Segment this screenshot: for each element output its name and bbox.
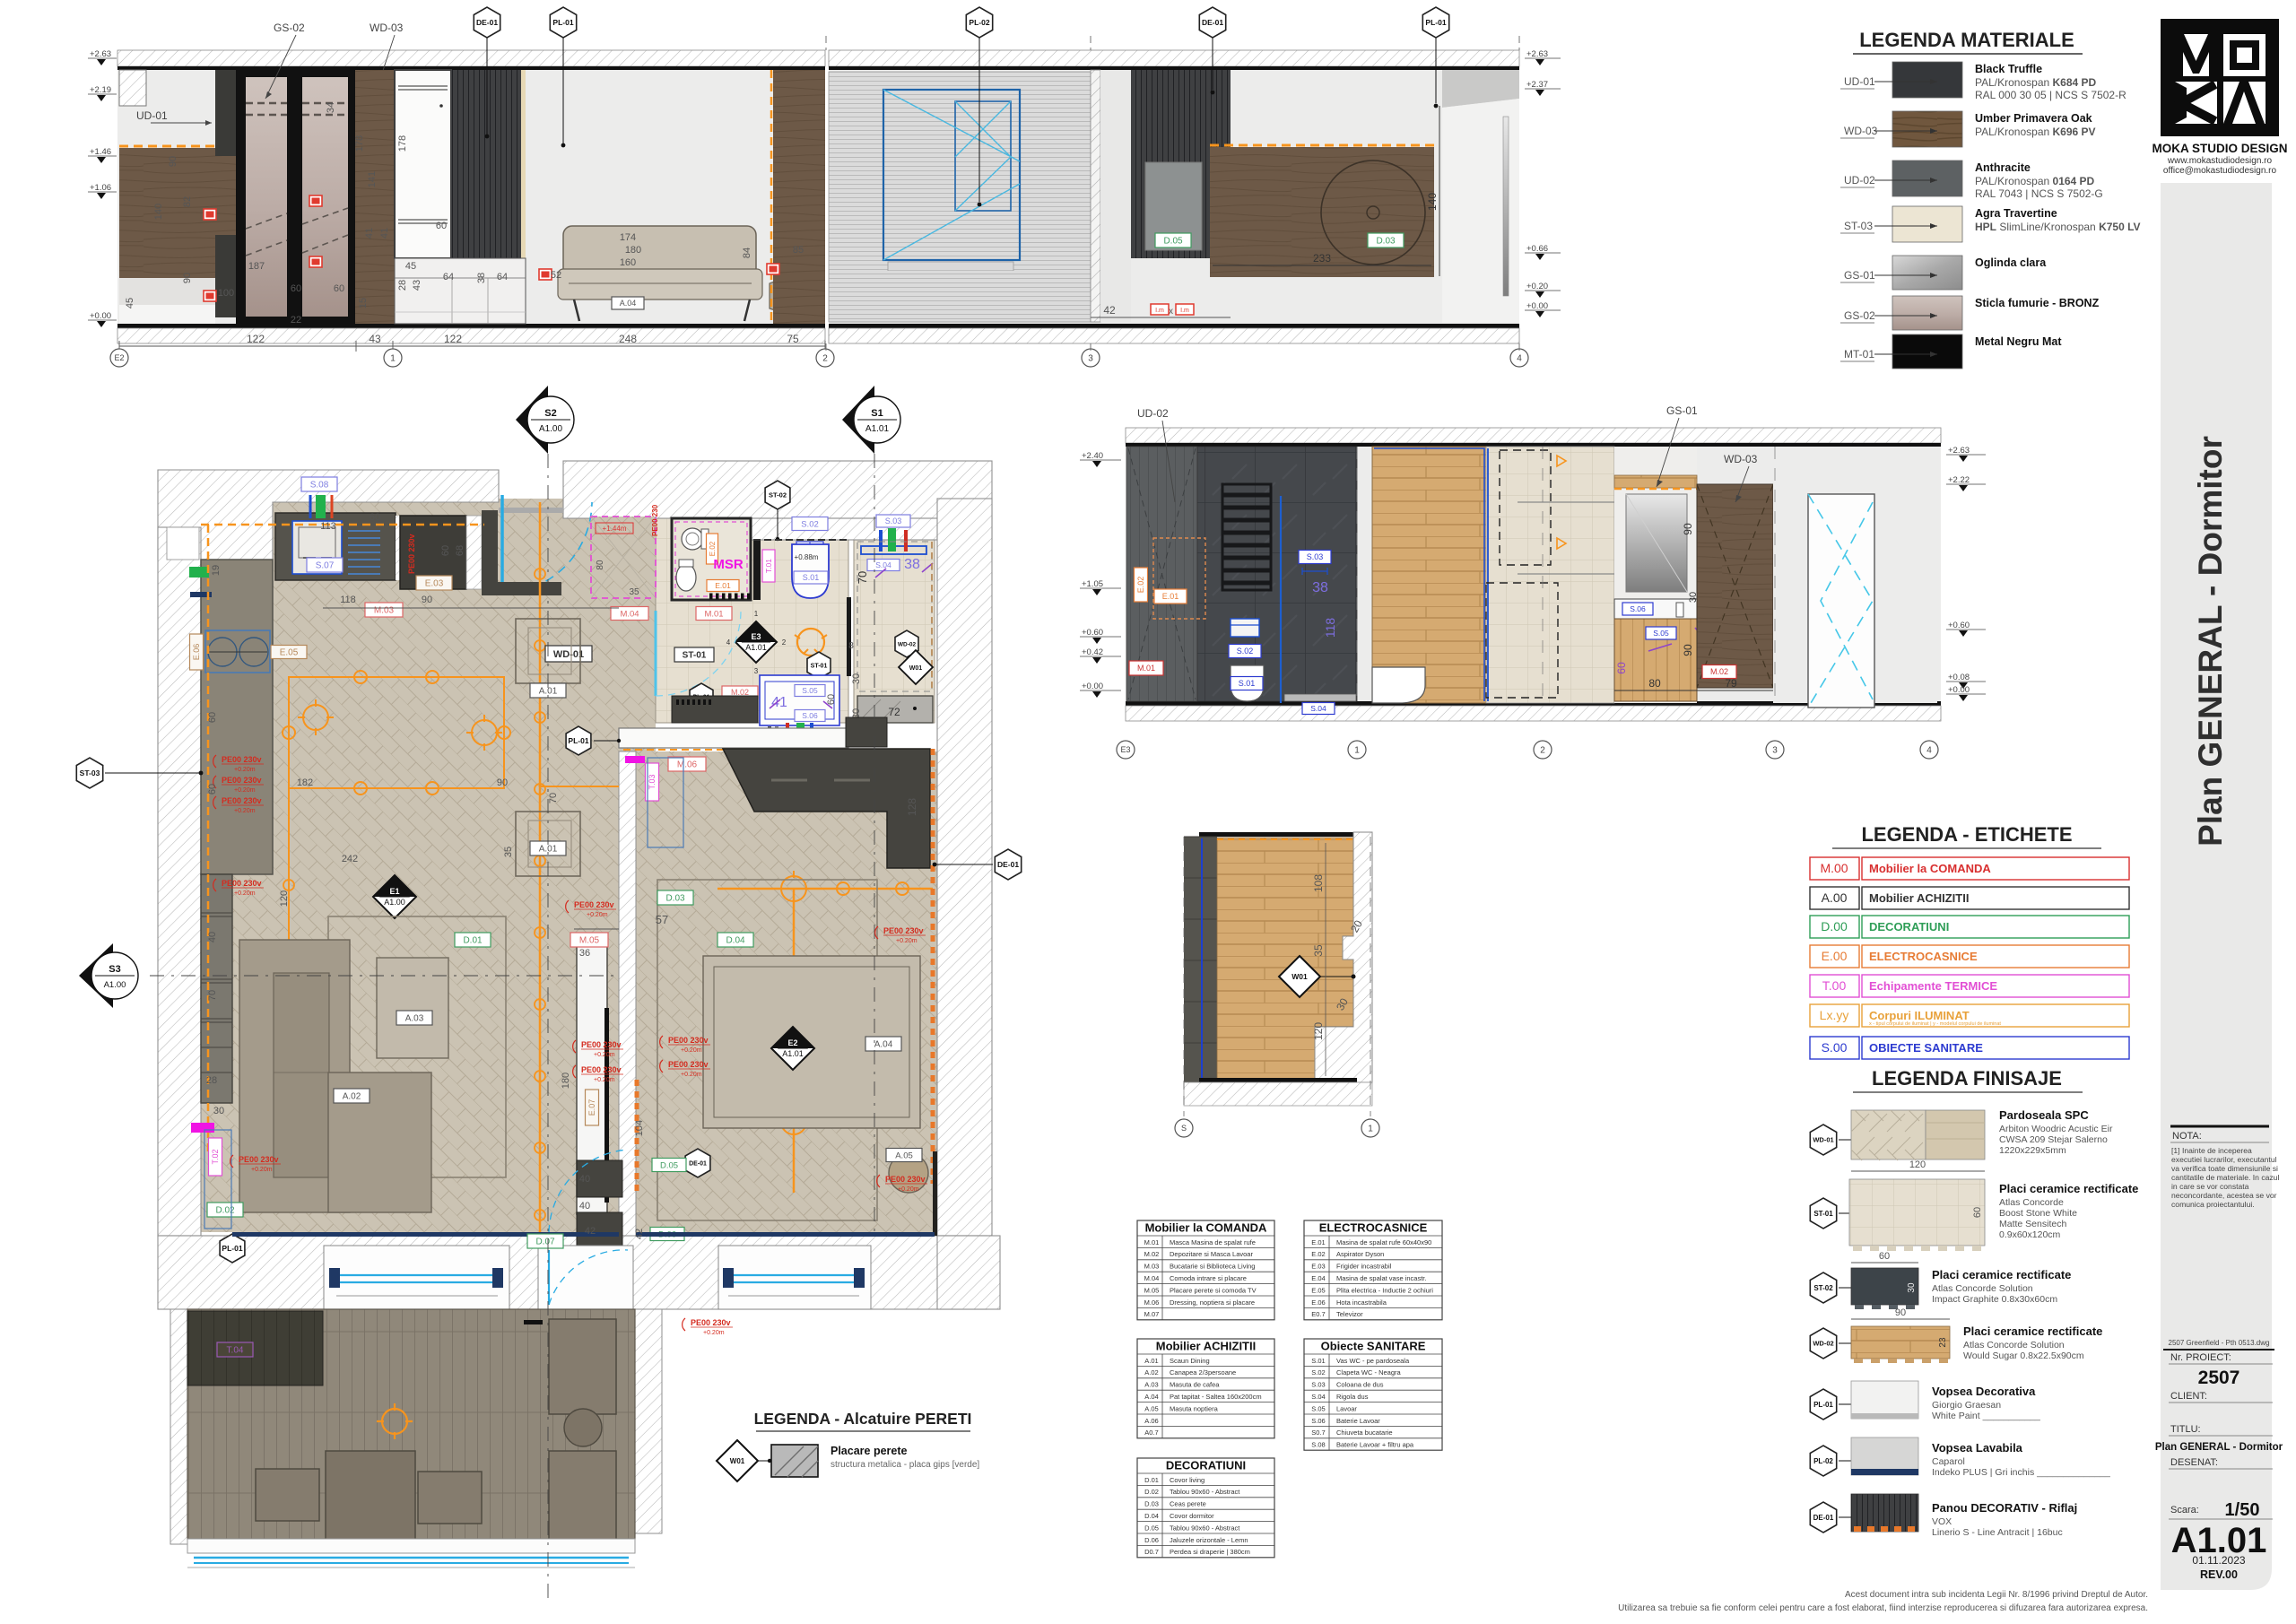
svg-text:E.02: E.02 xyxy=(1311,1250,1325,1258)
svg-text:ST-03: ST-03 xyxy=(1844,220,1873,232)
svg-text:ST-01: ST-01 xyxy=(683,651,707,661)
svg-text:ST-02: ST-02 xyxy=(1813,1284,1833,1292)
svg-text:Matte Sensitech: Matte Sensitech xyxy=(1999,1219,2066,1229)
svg-text:A.04: A.04 xyxy=(874,1040,893,1050)
svg-text:80: 80 xyxy=(596,560,605,570)
svg-text:+0.60: +0.60 xyxy=(1082,628,1103,638)
svg-text:64: 64 xyxy=(443,272,454,282)
svg-text:ST-02: ST-02 xyxy=(769,491,787,499)
svg-text:S.03: S.03 xyxy=(1307,552,1324,561)
svg-text:Vas WC - pe pardoseala: Vas WC - pe pardoseala xyxy=(1336,1357,1410,1365)
svg-text:M.01: M.01 xyxy=(1144,1238,1160,1246)
svg-text:M.05: M.05 xyxy=(1144,1286,1160,1294)
svg-text:GS-01: GS-01 xyxy=(1844,269,1875,282)
svg-text:+0.20m: +0.20m xyxy=(681,1072,702,1078)
svg-text:E.05: E.05 xyxy=(1311,1286,1325,1294)
svg-text:Utilizarea sa trebuie sa fie c: Utilizarea sa trebuie sa fie conform cel… xyxy=(1618,1603,2148,1613)
svg-text:180: 180 xyxy=(561,1073,571,1089)
svg-text:PE00 230v: PE00 230v xyxy=(222,796,262,805)
svg-text:35: 35 xyxy=(1312,944,1325,957)
svg-text:PL-01: PL-01 xyxy=(568,736,588,745)
svg-text:Mobilier la COMANDA: Mobilier la COMANDA xyxy=(1145,1221,1267,1235)
svg-text:Obiecte SANITARE: Obiecte SANITARE xyxy=(1321,1340,1426,1353)
svg-text:248: 248 xyxy=(619,333,637,345)
svg-text:LEGENDA - Alcatuire PERETI: LEGENDA - Alcatuire PERETI xyxy=(754,1410,972,1428)
svg-text:Boost Stone White: Boost Stone White xyxy=(1999,1208,2077,1219)
svg-text:M.03: M.03 xyxy=(1144,1263,1160,1271)
svg-text:+0.60: +0.60 xyxy=(1948,621,1970,630)
svg-text:S.06: S.06 xyxy=(1630,604,1646,613)
svg-text:1: 1 xyxy=(390,354,396,364)
svg-text:S.01: S.01 xyxy=(803,573,820,582)
svg-text:S.01: S.01 xyxy=(1239,679,1256,688)
svg-text:PL-01: PL-01 xyxy=(552,18,573,27)
svg-text:38: 38 xyxy=(904,557,920,572)
svg-text:OBIECTE SANITARE: OBIECTE SANITARE xyxy=(1869,1041,1983,1055)
svg-text:S.03: S.03 xyxy=(885,517,902,525)
svg-text:Canapea 2/3persoane: Canapea 2/3persoane xyxy=(1170,1368,1236,1376)
svg-text:Chiuveta bucatarie: Chiuveta bucatarie xyxy=(1336,1429,1393,1437)
svg-text:Giorgio Graesan: Giorgio Graesan xyxy=(1932,1400,2001,1411)
svg-text:80: 80 xyxy=(1648,677,1661,690)
svg-text:UD-02: UD-02 xyxy=(1137,407,1169,420)
svg-text:Masuta de cafea: Masuta de cafea xyxy=(1170,1381,1220,1389)
svg-text:PL-02: PL-02 xyxy=(1813,1457,1833,1465)
svg-text:S3: S3 xyxy=(109,964,120,975)
svg-text:28: 28 xyxy=(206,1075,217,1086)
svg-text:187: 187 xyxy=(248,261,265,272)
svg-text:90: 90 xyxy=(422,595,432,605)
svg-text:E0.7: E0.7 xyxy=(1311,1310,1325,1318)
svg-text:Plan GENERAL - Dormitor: Plan GENERAL - Dormitor xyxy=(2192,436,2229,847)
svg-text:WD-03: WD-03 xyxy=(370,22,404,34)
svg-text:D.03: D.03 xyxy=(1144,1500,1159,1508)
svg-text:W01: W01 xyxy=(909,665,923,672)
svg-text:35: 35 xyxy=(503,847,514,857)
svg-text:52: 52 xyxy=(551,270,561,281)
svg-text:60: 60 xyxy=(440,545,451,556)
svg-text:E.03: E.03 xyxy=(425,579,444,589)
svg-text:120: 120 xyxy=(1909,1159,1926,1170)
svg-text:White Paint ___________: White Paint ___________ xyxy=(1932,1411,2040,1421)
svg-text:+1.44m: +1.44m xyxy=(603,525,627,533)
svg-text:3: 3 xyxy=(1772,746,1778,756)
svg-text:T.02: T.02 xyxy=(211,1149,220,1164)
svg-text:D.05: D.05 xyxy=(1163,237,1183,247)
svg-text:64: 64 xyxy=(497,272,508,282)
svg-text:4: 4 xyxy=(726,638,731,647)
svg-text:45: 45 xyxy=(405,261,416,272)
svg-text:43: 43 xyxy=(412,280,422,291)
svg-text:W01: W01 xyxy=(1291,972,1308,981)
svg-text:WD-03: WD-03 xyxy=(1844,125,1878,137)
svg-text:79: 79 xyxy=(1725,677,1737,690)
svg-text:DECORATIUNI: DECORATIUNI xyxy=(1869,920,1949,934)
svg-text:43: 43 xyxy=(369,333,381,345)
svg-text:PL-01: PL-01 xyxy=(222,1244,242,1253)
svg-text:60: 60 xyxy=(207,712,218,723)
svg-text:4: 4 xyxy=(1926,746,1932,756)
svg-text:A0.7: A0.7 xyxy=(1144,1429,1158,1437)
svg-text:D.02: D.02 xyxy=(1144,1488,1159,1496)
svg-text:Umber Primavera Oak: Umber Primavera Oak xyxy=(1975,112,2092,125)
svg-text:RAL 000 30 05 | NCS S 7502-R: RAL 000 30 05 | NCS S 7502-R xyxy=(1975,89,2126,101)
svg-text:S.08: S.08 xyxy=(1311,1441,1325,1449)
svg-text:PE00 230: PE00 230 xyxy=(651,504,659,536)
svg-text:3: 3 xyxy=(1088,354,1093,364)
svg-text:A.05: A.05 xyxy=(1144,1404,1158,1412)
svg-text:Plan GENERAL - Dormitor: Plan GENERAL - Dormitor xyxy=(2155,1442,2283,1453)
svg-text:A.03: A.03 xyxy=(1144,1381,1158,1389)
svg-text:M.02: M.02 xyxy=(1144,1250,1160,1258)
svg-text:M.01: M.01 xyxy=(704,609,723,619)
svg-text:M.03: M.03 xyxy=(374,606,395,616)
svg-text:+0.88m: +0.88m xyxy=(795,553,819,561)
svg-text:Placi ceramice rectificate: Placi ceramice rectificate xyxy=(1999,1182,2138,1195)
svg-text:S2: S2 xyxy=(544,408,556,419)
svg-text:+2.63: +2.63 xyxy=(1948,446,1970,456)
svg-text:41: 41 xyxy=(364,228,375,239)
svg-text:Arbiton Woodric Acustic Eir: Arbiton Woodric Acustic Eir xyxy=(1999,1124,2113,1134)
svg-text:108: 108 xyxy=(1312,874,1325,892)
svg-text:D.00: D.00 xyxy=(1821,919,1848,934)
svg-text:M.06: M.06 xyxy=(1144,1298,1160,1307)
svg-text:Impact Graphite 0.8x30x60cm: Impact Graphite 0.8x30x60cm xyxy=(1932,1294,2057,1305)
svg-text:E.06: E.06 xyxy=(1311,1298,1325,1307)
svg-text:Agra Travertine: Agra Travertine xyxy=(1975,207,2057,220)
svg-text:S.07: S.07 xyxy=(316,561,335,571)
svg-text:Dressing, noptiera si placare: Dressing, noptiera si placare xyxy=(1170,1298,1255,1307)
svg-text:+0.20m: +0.20m xyxy=(594,1052,615,1058)
svg-text:Sticla fumurie - BRONZ: Sticla fumurie - BRONZ xyxy=(1975,297,2100,309)
svg-text:85: 85 xyxy=(793,245,804,256)
svg-text:120: 120 xyxy=(1312,1022,1325,1040)
svg-text:90: 90 xyxy=(497,777,508,788)
svg-text:128: 128 xyxy=(906,798,918,816)
svg-text:Perdea si draperie | 380cm: Perdea si draperie | 380cm xyxy=(1170,1548,1250,1556)
svg-text:160: 160 xyxy=(620,257,636,268)
svg-text:28: 28 xyxy=(397,280,408,291)
svg-text:30: 30 xyxy=(213,1106,224,1116)
svg-text:1220x229x5mm: 1220x229x5mm xyxy=(1999,1145,2066,1156)
svg-text:DECORATIUNI: DECORATIUNI xyxy=(1166,1459,1246,1472)
svg-text:+0.20m: +0.20m xyxy=(681,1047,702,1054)
svg-text:60: 60 xyxy=(1972,1207,1983,1218)
svg-text:120: 120 xyxy=(279,890,290,907)
svg-text:MT-01: MT-01 xyxy=(1844,348,1874,360)
svg-text:36: 36 xyxy=(579,948,590,959)
svg-text:D.05: D.05 xyxy=(1144,1524,1159,1532)
svg-text:T.04: T.04 xyxy=(227,1346,244,1356)
svg-text:I.m: I.m xyxy=(1180,308,1189,314)
svg-text:60: 60 xyxy=(207,784,218,795)
svg-text:1: 1 xyxy=(754,610,759,618)
svg-text:34: 34 xyxy=(326,102,336,113)
svg-text:+0.00: +0.00 xyxy=(90,311,111,321)
svg-text:PE00 230v: PE00 230v xyxy=(668,1060,709,1069)
svg-text:Masina de spalat vase incastr.: Masina de spalat vase incastr. xyxy=(1336,1274,1426,1282)
svg-text:8: 8 xyxy=(848,641,854,651)
svg-text:15: 15 xyxy=(358,298,369,308)
svg-text:Masca Masina de spalat rufe: Masca Masina de spalat rufe xyxy=(1170,1238,1256,1246)
svg-text:Nr. PROIECT:: Nr. PROIECT: xyxy=(2170,1352,2231,1363)
svg-text:1: 1 xyxy=(1354,746,1360,756)
svg-text:90: 90 xyxy=(168,156,178,167)
svg-text:M.04: M.04 xyxy=(620,609,639,619)
svg-text:A.01: A.01 xyxy=(1144,1357,1158,1365)
svg-text:T.00: T.00 xyxy=(1822,978,1847,993)
svg-text:A.02: A.02 xyxy=(1144,1368,1158,1376)
svg-text:A.01: A.01 xyxy=(539,687,558,697)
svg-text:E2: E2 xyxy=(787,1038,797,1047)
svg-text:Televizor: Televizor xyxy=(1336,1310,1363,1318)
svg-text:office@mokastudiodesign.ro: office@mokastudiodesign.ro xyxy=(2163,166,2277,176)
svg-text:T.03: T.03 xyxy=(648,774,657,789)
svg-text:A.03: A.03 xyxy=(405,1014,424,1024)
svg-text:+0.20m: +0.20m xyxy=(234,808,256,814)
svg-text:Coloana de dus: Coloana de dus xyxy=(1336,1381,1384,1389)
svg-text:Caparol: Caparol xyxy=(1932,1456,1965,1467)
svg-text:60: 60 xyxy=(826,694,837,705)
svg-text:PE00 230v: PE00 230v xyxy=(885,1175,926,1184)
svg-text:+0.20m: +0.20m xyxy=(251,1167,273,1173)
svg-text:ELECTROCASNICE: ELECTROCASNICE xyxy=(1869,950,1978,963)
svg-text:E.01: E.01 xyxy=(715,581,731,590)
svg-text:84: 84 xyxy=(742,248,752,258)
svg-text:Depozitare si Masca Lavoar: Depozitare si Masca Lavoar xyxy=(1170,1250,1253,1258)
svg-text:Vopsea Decorativa: Vopsea Decorativa xyxy=(1932,1385,2036,1398)
svg-text:Baterie Lavoar + filtru apa: Baterie Lavoar + filtru apa xyxy=(1336,1441,1414,1449)
svg-text:A1.00: A1.00 xyxy=(104,980,126,990)
svg-text:PE00 230v: PE00 230v xyxy=(581,1040,622,1049)
svg-text:+0.42: +0.42 xyxy=(1082,647,1103,657)
svg-text:42: 42 xyxy=(1103,304,1116,317)
svg-text:140: 140 xyxy=(153,204,164,220)
svg-text:A.06: A.06 xyxy=(1144,1417,1158,1425)
svg-text:180: 180 xyxy=(625,245,641,256)
svg-text:GS-02: GS-02 xyxy=(1844,309,1875,322)
svg-text:S.02: S.02 xyxy=(1311,1368,1325,1376)
svg-text:ELECTROCASNICE: ELECTROCASNICE xyxy=(1319,1221,1428,1235)
svg-text:PE00 230v: PE00 230v xyxy=(222,776,262,785)
svg-text:233: 233 xyxy=(1313,252,1331,265)
svg-text:in care se vor constata: in care se vor constata xyxy=(2171,1182,2249,1191)
svg-text:x - tipul corpului de iluminat: x - tipul corpului de iluminat | y - mod… xyxy=(1869,1021,2001,1027)
svg-text:E3: E3 xyxy=(1120,745,1130,754)
svg-text:Masina de spalat rufe 60x40x90: Masina de spalat rufe 60x40x90 xyxy=(1336,1238,1431,1246)
svg-text:Would Sugar 0.8x22.5x90cm: Would Sugar 0.8x22.5x90cm xyxy=(1963,1350,2084,1361)
svg-text:60: 60 xyxy=(1615,662,1628,674)
svg-text:LEGENDA - ETICHETE: LEGENDA - ETICHETE xyxy=(1861,823,2072,846)
svg-text:Clapeta WC - Neagra: Clapeta WC - Neagra xyxy=(1336,1368,1402,1376)
svg-text:E.04: E.04 xyxy=(1311,1274,1325,1282)
svg-text:DE-01: DE-01 xyxy=(476,18,498,27)
svg-text:40: 40 xyxy=(207,932,218,942)
svg-text:M.02: M.02 xyxy=(1710,667,1728,676)
svg-text:118: 118 xyxy=(340,595,356,605)
svg-text:+0.00: +0.00 xyxy=(1948,685,1970,695)
svg-text:242: 242 xyxy=(342,854,358,864)
svg-text:+0.20m: +0.20m xyxy=(234,787,256,794)
svg-text:I.m: I.m xyxy=(1155,308,1164,314)
svg-text:HPL SlimLine/Kronospan K750 LV: HPL SlimLine/Kronospan K750 LV xyxy=(1975,221,2141,233)
svg-text:DE-01: DE-01 xyxy=(1813,1514,1834,1522)
svg-text:comunica proiectantului.: comunica proiectantului. xyxy=(2171,1200,2255,1209)
svg-text:+2.19: +2.19 xyxy=(90,85,111,95)
svg-text:+2.40: +2.40 xyxy=(1082,451,1103,461)
svg-text:4: 4 xyxy=(1517,354,1522,364)
svg-text:Metal Negru Mat: Metal Negru Mat xyxy=(1975,335,2062,348)
svg-text:WD-02: WD-02 xyxy=(898,641,917,647)
svg-text:VOX: VOX xyxy=(1932,1516,1952,1527)
svg-text:E2: E2 xyxy=(114,353,124,362)
svg-text:M.00: M.00 xyxy=(1820,861,1848,875)
svg-text:41: 41 xyxy=(771,695,787,710)
svg-text:1/50: 1/50 xyxy=(2225,1500,2260,1520)
svg-text:E.00: E.00 xyxy=(1822,949,1848,963)
svg-text:[1] Inainte de inceperea: [1] Inainte de inceperea xyxy=(2171,1146,2252,1155)
svg-text:LEGENDA FINISAJE: LEGENDA FINISAJE xyxy=(1872,1067,2062,1090)
svg-text:E1: E1 xyxy=(389,887,399,896)
svg-text:178: 178 xyxy=(354,135,365,152)
svg-text:D.01: D.01 xyxy=(1144,1476,1159,1484)
svg-text:Jaluzele orizontale - Lemn: Jaluzele orizontale - Lemn xyxy=(1170,1536,1248,1544)
svg-text:Comoda intrare si placare: Comoda intrare si placare xyxy=(1170,1274,1247,1282)
svg-text:Mobilier ACHIZITII: Mobilier ACHIZITII xyxy=(1869,891,1969,905)
svg-text:30: 30 xyxy=(851,673,862,684)
svg-text:A1.01: A1.01 xyxy=(782,1049,804,1058)
svg-text:M.06: M.06 xyxy=(677,760,698,770)
svg-text:A.04: A.04 xyxy=(620,299,637,308)
svg-text:60: 60 xyxy=(1879,1251,1890,1262)
svg-text:UD-01: UD-01 xyxy=(136,109,168,122)
svg-text:2507 Greenfield - Pth 0513.dwg: 2507 Greenfield - Pth 0513.dwg xyxy=(2169,1339,2270,1347)
svg-text:+2.63: +2.63 xyxy=(1526,49,1548,59)
svg-text:+0.00: +0.00 xyxy=(1526,301,1548,311)
svg-text:122: 122 xyxy=(444,333,462,345)
svg-text:RAL 7043 | NCS S 7502-G: RAL 7043 | NCS S 7502-G xyxy=(1975,187,2103,200)
svg-text:Plita electrica - Inductie 2 o: Plita electrica - Inductie 2 ochiuri xyxy=(1336,1286,1433,1294)
svg-text:Covor dormitor: Covor dormitor xyxy=(1170,1512,1214,1520)
svg-text:2: 2 xyxy=(822,354,828,364)
svg-text:Lx.yy: Lx.yy xyxy=(1820,1008,1849,1022)
svg-text:MSR: MSR xyxy=(713,557,744,572)
svg-text:PE00 230v: PE00 230v xyxy=(574,900,614,909)
svg-text:E.05: E.05 xyxy=(280,648,299,658)
svg-text:NOTA:: NOTA: xyxy=(2172,1131,2202,1142)
svg-text:DE-01: DE-01 xyxy=(689,1160,707,1167)
svg-text:A.02: A.02 xyxy=(343,1092,361,1102)
svg-text:Panou DECORATIV - Riflaj: Panou DECORATIV - Riflaj xyxy=(1932,1501,2077,1515)
svg-text:60: 60 xyxy=(291,283,301,294)
svg-text:Placi ceramice rectificate: Placi ceramice rectificate xyxy=(1932,1268,2071,1281)
svg-text:D.04: D.04 xyxy=(1144,1512,1159,1520)
svg-text:UD-01: UD-01 xyxy=(1844,75,1875,88)
svg-text:GS-01: GS-01 xyxy=(1666,404,1698,417)
svg-text:A.04: A.04 xyxy=(1144,1393,1158,1401)
svg-text:3: 3 xyxy=(754,667,759,675)
svg-text:S.03: S.03 xyxy=(1311,1381,1325,1389)
svg-text:178: 178 xyxy=(397,135,408,152)
svg-text:+0.08: +0.08 xyxy=(1948,673,1970,682)
svg-text:S.05: S.05 xyxy=(802,686,818,695)
svg-text:E.03: E.03 xyxy=(1311,1263,1325,1271)
svg-text:S.00: S.00 xyxy=(1822,1040,1848,1055)
svg-text:GS-02: GS-02 xyxy=(274,22,305,34)
svg-text:Placare perete si comoda TV: Placare perete si comoda TV xyxy=(1170,1286,1257,1294)
svg-text:141: 141 xyxy=(367,171,378,187)
svg-text:CWSA 209 Stejar Salerno: CWSA 209 Stejar Salerno xyxy=(1999,1134,2108,1145)
svg-text:D.02: D.02 xyxy=(215,1206,235,1216)
svg-text:19: 19 xyxy=(211,565,222,576)
svg-text:E.01: E.01 xyxy=(1311,1238,1325,1246)
svg-text:23: 23 xyxy=(1938,1337,1948,1348)
svg-text:30: 30 xyxy=(1688,592,1699,603)
svg-text:57: 57 xyxy=(656,913,668,926)
svg-text:Mobilier ACHIZITII: Mobilier ACHIZITII xyxy=(1156,1340,1256,1353)
svg-text:+0.20m: +0.20m xyxy=(234,890,256,897)
svg-text:42: 42 xyxy=(585,1226,596,1237)
svg-text:PE00 230v: PE00 230v xyxy=(581,1065,622,1074)
svg-text:90: 90 xyxy=(182,273,193,283)
svg-text:90: 90 xyxy=(1895,1307,1906,1318)
svg-text:72: 72 xyxy=(888,706,900,718)
svg-text:Masuta noptiera: Masuta noptiera xyxy=(1170,1404,1219,1412)
svg-text:E3: E3 xyxy=(751,632,761,641)
svg-text:+0.20m: +0.20m xyxy=(587,912,608,918)
svg-text:Frigider incastrabil: Frigider incastrabil xyxy=(1336,1263,1392,1271)
svg-text:DE-01: DE-01 xyxy=(1202,18,1223,27)
svg-text:+0.66: +0.66 xyxy=(1526,244,1548,254)
svg-text:90: 90 xyxy=(1682,644,1694,656)
svg-text:S1: S1 xyxy=(871,408,883,419)
svg-text:T.01: T.01 xyxy=(764,559,773,573)
svg-text:neconcordante, acestea se vor: neconcordante, acestea se vor xyxy=(2171,1191,2277,1200)
svg-text:S.06: S.06 xyxy=(802,711,818,720)
svg-text:W01: W01 xyxy=(730,1457,745,1465)
svg-text:Baterie Lavoar: Baterie Lavoar xyxy=(1336,1417,1380,1425)
svg-text:60: 60 xyxy=(436,221,447,231)
svg-text:CLIENT:: CLIENT: xyxy=(2170,1391,2207,1402)
svg-text:30: 30 xyxy=(1907,1282,1917,1293)
svg-text:60: 60 xyxy=(334,283,344,294)
svg-text:S: S xyxy=(1181,1124,1187,1133)
svg-text:S.06: S.06 xyxy=(1311,1417,1325,1425)
svg-text:MOKA STUDIO DESIGN: MOKA STUDIO DESIGN xyxy=(2152,142,2287,155)
svg-text:Corpuri ILUMINAT: Corpuri ILUMINAT xyxy=(1869,1009,1970,1022)
svg-text:M.05: M.05 xyxy=(579,936,600,946)
svg-text:45: 45 xyxy=(125,298,135,308)
svg-text:Linerio S - Line Antracit |: Linerio S - Line Antracit | 16buc xyxy=(1932,1527,2063,1538)
svg-text:PL-01: PL-01 xyxy=(1425,18,1446,27)
svg-text:LEGENDA MATERIALE: LEGENDA MATERIALE xyxy=(1859,29,2074,51)
svg-text:+0.00: +0.00 xyxy=(1082,682,1103,691)
svg-text:E.02: E.02 xyxy=(709,541,717,556)
svg-text:+0.20: +0.20 xyxy=(1526,282,1548,291)
svg-text:0.9x60x120cm: 0.9x60x120cm xyxy=(1999,1229,2061,1240)
svg-text:Pardoseala SPC: Pardoseala SPC xyxy=(1999,1108,2089,1122)
svg-text:WD-02: WD-02 xyxy=(1813,1340,1833,1348)
svg-text:Aspirator Dyson: Aspirator Dyson xyxy=(1336,1250,1384,1258)
svg-text:Indeko PLUS | Gri inchis _____: Indeko PLUS | Gri inchis ______________ xyxy=(1932,1467,2110,1478)
svg-text:Tablou 90x60 - Abstract: Tablou 90x60 - Abstract xyxy=(1170,1488,1240,1496)
svg-text:Covor living: Covor living xyxy=(1170,1476,1205,1484)
svg-text:S.02: S.02 xyxy=(1237,647,1254,656)
svg-text:+1.05: +1.05 xyxy=(1082,579,1103,589)
svg-text:+0.20m: +0.20m xyxy=(703,1330,725,1336)
svg-text:40: 40 xyxy=(579,1174,590,1185)
svg-text:42: 42 xyxy=(634,1229,645,1239)
